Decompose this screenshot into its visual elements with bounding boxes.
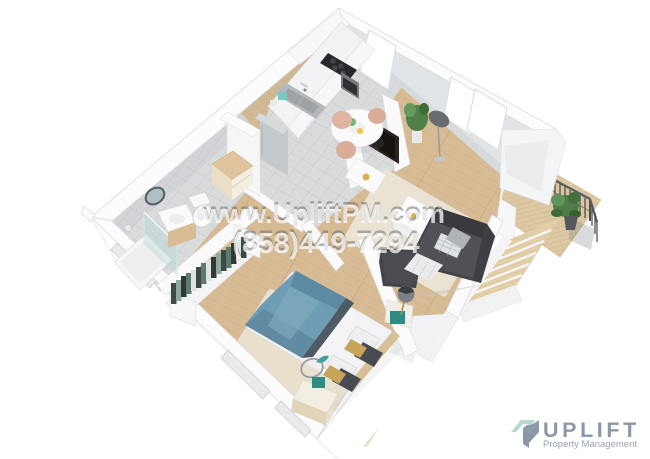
svg-text:Property Management: Property Management [543, 439, 637, 450]
svg-text:(858)449-7294: (858)449-7294 [233, 228, 420, 260]
svg-text:www.UpliftPM.com: www.UpliftPM.com [202, 199, 445, 229]
